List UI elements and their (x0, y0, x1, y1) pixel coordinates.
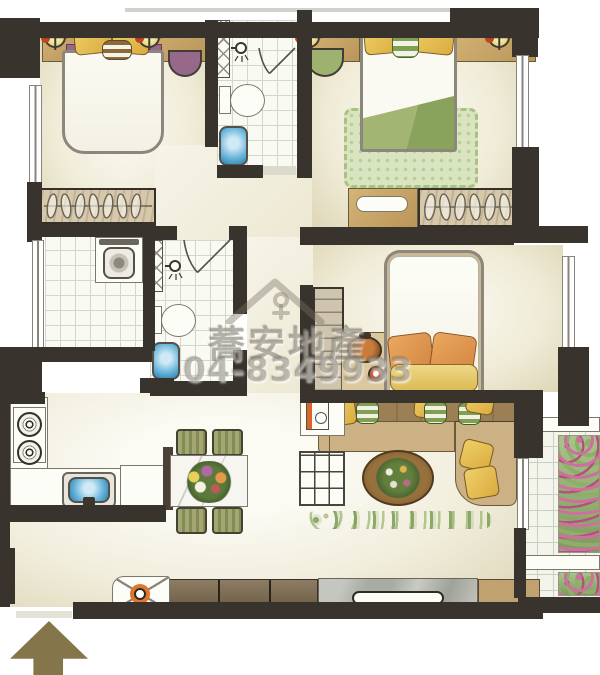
balcony-flower-planter (558, 435, 600, 553)
wall (217, 165, 263, 178)
sofa-cushion-striped (356, 401, 379, 424)
sofa-seat (327, 421, 455, 452)
wall (0, 347, 42, 398)
bedroom1-bolster-pillow (102, 40, 132, 60)
roof-line (125, 8, 455, 12)
bathroom2-toilet-bowl (161, 304, 196, 337)
dining-chair (212, 507, 243, 534)
bedroom1-wardrobe (40, 188, 156, 224)
wall (38, 347, 152, 362)
bedroom2-wardrobe (418, 188, 516, 227)
window (29, 85, 42, 184)
wall (512, 226, 588, 243)
window (516, 55, 529, 149)
wall-kitchen-peninsula (8, 505, 166, 522)
lattice-stool (299, 451, 345, 506)
wall (518, 597, 600, 613)
wall-bottom (73, 602, 543, 619)
wall (300, 227, 514, 245)
bathroom1-door-mat (262, 166, 296, 175)
plant-garland (306, 511, 492, 529)
bathroom1-sink (219, 126, 248, 166)
entry-table-knob-icon (134, 588, 146, 600)
wall (558, 347, 589, 426)
wall (297, 10, 312, 178)
device-dial-icon (315, 412, 327, 424)
entrance-arrow (10, 621, 88, 675)
floor-plan: 蕎安地產 04-8349933 (0, 0, 600, 675)
bedroom3-kettle (347, 336, 382, 363)
bedroom2-bench-cushion (356, 196, 408, 212)
stove-burner-icon (17, 412, 42, 437)
balcony-ledge-bottom (521, 555, 600, 570)
wall (450, 8, 539, 38)
wall-top (35, 22, 456, 38)
wall (38, 224, 156, 237)
balcony-door-window (517, 458, 529, 530)
wall (229, 226, 247, 240)
bathroom1-toilet-bowl (230, 84, 265, 117)
dining-chair (176, 429, 207, 456)
wall (205, 20, 218, 147)
stove-burner-icon (17, 440, 42, 465)
balcony-flower-planter (558, 572, 600, 596)
dining-chair (176, 507, 207, 534)
wall (514, 528, 526, 598)
wall (233, 240, 247, 314)
wall (140, 378, 174, 393)
wall (514, 395, 543, 458)
bathroom2-sink (152, 342, 180, 380)
wall (300, 285, 313, 393)
sofa-cushion-striped (424, 401, 447, 424)
window (562, 256, 575, 349)
wall (512, 147, 539, 228)
bedroom3-kettle-lid (359, 332, 371, 339)
coffee-table-plant (376, 458, 420, 498)
wall (150, 226, 177, 240)
chaise-pillow (463, 465, 500, 501)
wall (0, 392, 45, 404)
wall (0, 18, 40, 78)
entrance-threshold (16, 611, 72, 618)
refrigerator (120, 465, 165, 509)
wall (143, 222, 155, 351)
window (32, 240, 44, 349)
bedroom1-bed (62, 50, 164, 154)
bedroom3-bolster (390, 364, 478, 392)
entrance-door-leaf (9, 548, 15, 604)
bedroom3-bookshelf (313, 287, 344, 393)
door-knob-icon (368, 366, 384, 382)
dining-centerpiece-flowers (182, 461, 236, 503)
dining-chair (212, 429, 243, 456)
wall (300, 390, 543, 403)
washing-machine-panel (99, 239, 139, 245)
washing-machine-door (103, 247, 135, 279)
